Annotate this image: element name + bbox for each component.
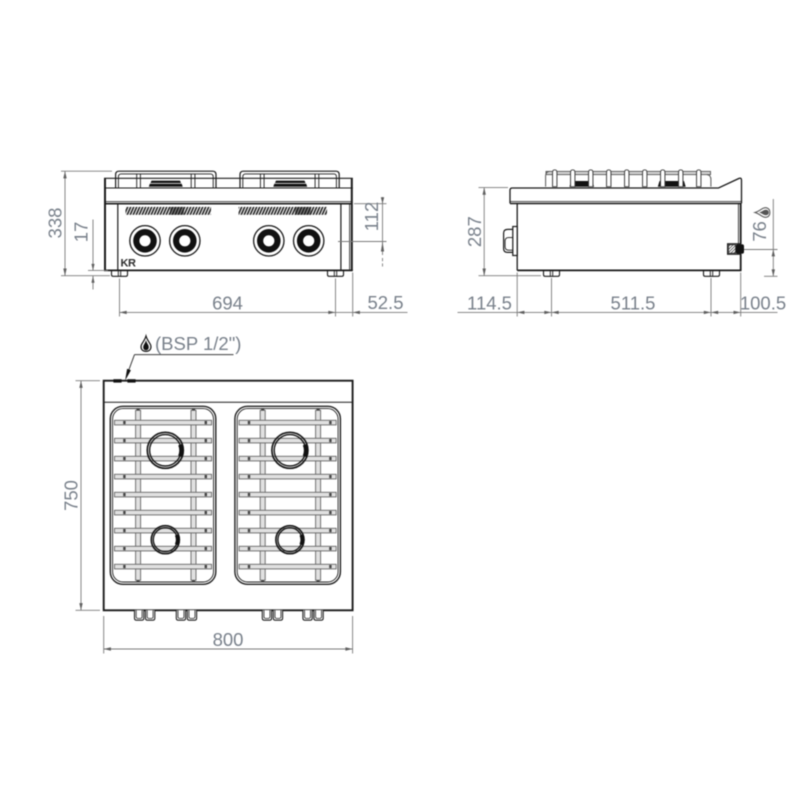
svg-text:(BSP 1/2"): (BSP 1/2") xyxy=(155,333,241,354)
svg-text:287: 287 xyxy=(464,216,485,247)
svg-text:694: 694 xyxy=(212,293,243,314)
svg-text:114.5: 114.5 xyxy=(467,293,512,314)
svg-text:750: 750 xyxy=(61,480,82,511)
svg-text:112: 112 xyxy=(361,202,382,232)
svg-text:52.5: 52.5 xyxy=(367,292,403,313)
svg-text:338: 338 xyxy=(45,208,66,239)
svg-text:100.5: 100.5 xyxy=(740,293,786,314)
svg-text:KR: KR xyxy=(121,258,136,270)
svg-text:800: 800 xyxy=(213,629,244,650)
svg-text:17: 17 xyxy=(71,222,92,243)
svg-text:76: 76 xyxy=(749,221,770,242)
svg-text:511.5: 511.5 xyxy=(611,293,656,314)
